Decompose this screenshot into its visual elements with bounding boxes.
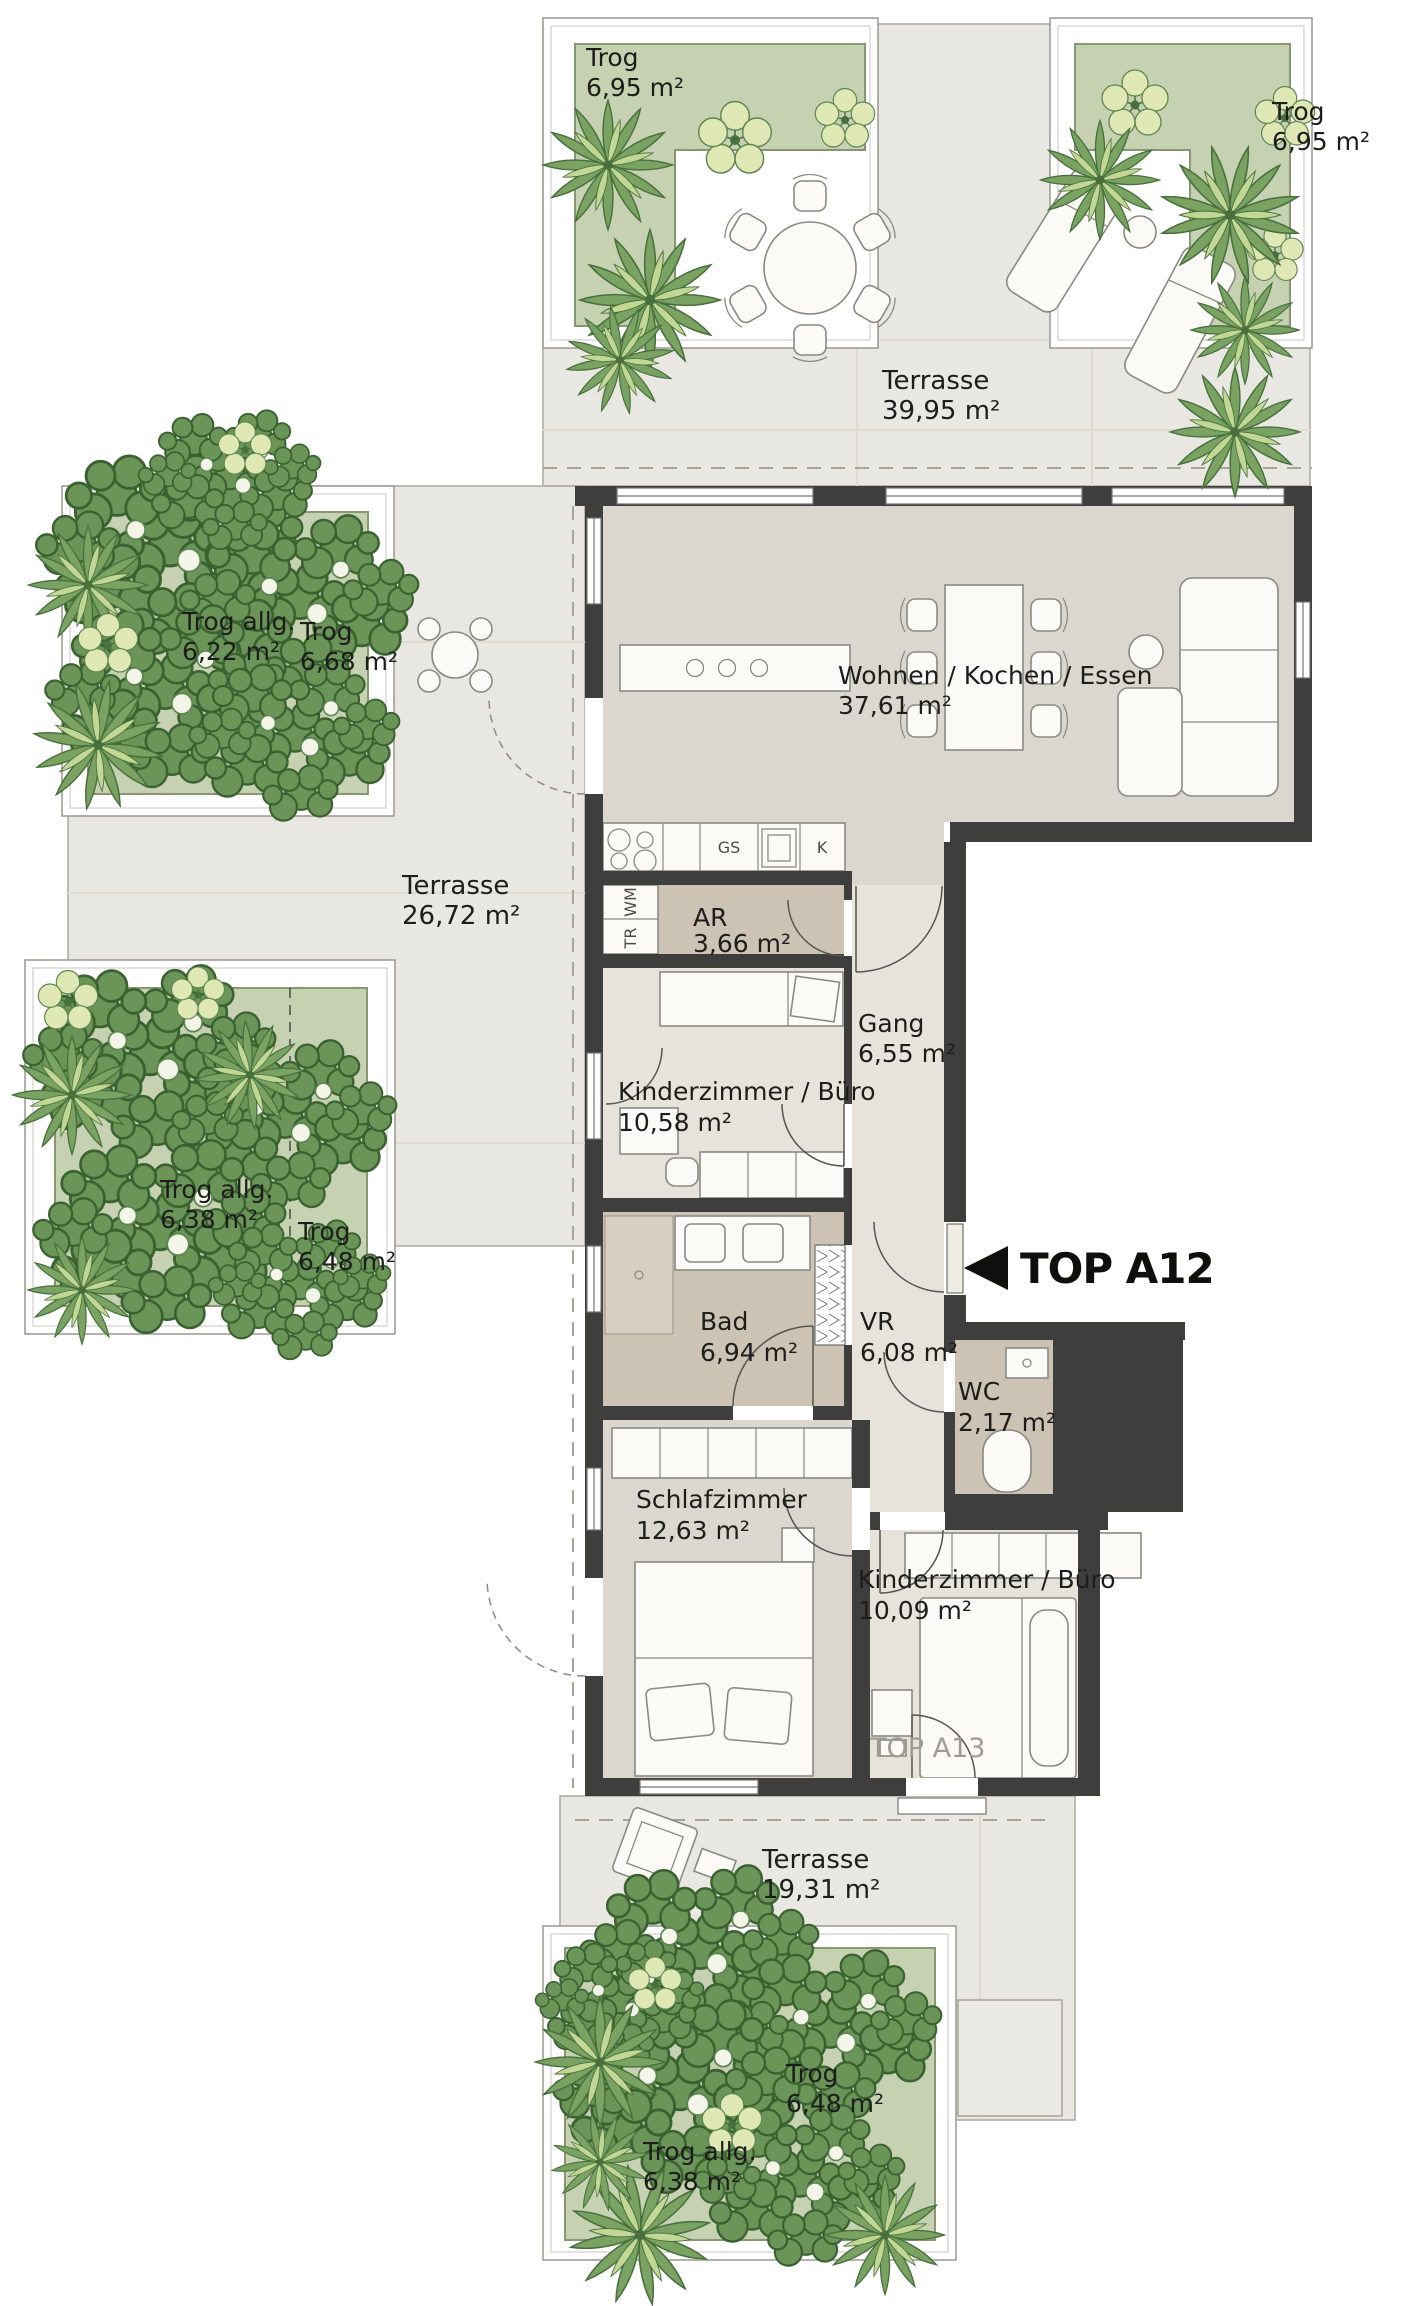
room-child1-area: 10,58 m² — [618, 1108, 732, 1137]
washbasin — [743, 1224, 783, 1262]
wall-segment — [950, 822, 1312, 842]
round-table-small — [432, 632, 478, 678]
wall-segment — [1078, 1512, 1100, 1796]
terrace-left-area: 26,72 m² — [402, 901, 520, 931]
room-vr-name: VR — [860, 1307, 894, 1336]
room-child1-name: Kinderzimmer / Büro — [618, 1077, 875, 1106]
wall-segment — [813, 1406, 852, 1420]
room-ar-name: AR — [693, 903, 727, 932]
room-bedroom-name: Schlafzimmer — [636, 1485, 808, 1514]
trough-left-upper-name: Trog — [299, 617, 353, 646]
trough-bottom-shared-area: 6,38 m² — [643, 2167, 741, 2196]
wall-segment — [870, 1512, 880, 1530]
dryer-label: TR — [621, 928, 640, 950]
terrace-left-name: Terrasse — [401, 871, 509, 901]
fridge-label: K — [817, 838, 828, 857]
terrace-top-area: 39,95 m² — [882, 396, 1000, 426]
wall-segment — [944, 842, 966, 1212]
planter-box-small — [958, 2000, 1062, 2116]
kitchen-counter: GS K — [603, 823, 845, 872]
wall-segment — [585, 1198, 852, 1212]
wall-segment — [944, 1295, 966, 1322]
room-wc-name: WC — [958, 1377, 1000, 1406]
room-bad-name: Bad — [700, 1307, 748, 1336]
trough-top-right-name: Trog — [1271, 97, 1325, 126]
wall-segment-shaft — [1053, 1322, 1183, 1512]
room-vr-area: 6,08 m² — [860, 1338, 958, 1367]
wc-sink — [1006, 1348, 1048, 1378]
trough-top-left-area: 6,95 m² — [586, 73, 684, 102]
wall-segment — [944, 1494, 1085, 1512]
room-ar-area: 3,66 m² — [693, 929, 791, 958]
room-living-area: 37,61 m² — [838, 691, 952, 720]
wall-segment — [844, 1345, 852, 1406]
room-wc-area: 2,17 m² — [958, 1408, 1056, 1437]
wall-segment — [852, 1420, 870, 1488]
terrace-door-opening — [585, 698, 603, 794]
door-swing-dashed — [487, 1578, 585, 1676]
room-gang-area: 6,55 m² — [858, 1039, 956, 1068]
wall-segment — [585, 1406, 733, 1420]
room-bad-area: 6,94 m² — [700, 1338, 798, 1367]
trough-left-lower-shared-area: 6,38 m² — [160, 1205, 258, 1234]
room-gang-name: Gang — [858, 1009, 924, 1038]
unit-arrow-icon — [964, 1246, 1008, 1290]
floor-plan-page: GS K WM TR — [0, 0, 1402, 2306]
trough-left-upper-area: 6,68 m² — [300, 647, 398, 676]
bed-double — [635, 1562, 813, 1776]
side-table — [1124, 216, 1156, 248]
neighbor-unit-label: TOP A13 — [869, 1733, 985, 1764]
terrace-top-name: Terrasse — [881, 366, 989, 396]
trough-left-upper-shared-name: Trog allg. — [181, 607, 295, 636]
wardrobe — [612, 1428, 852, 1478]
pillow — [724, 1687, 792, 1744]
wardrobe — [700, 1152, 844, 1198]
entry-door-leaf — [947, 1224, 963, 1293]
washing-machine-label: WM — [621, 887, 640, 917]
trough-top-left-name: Trog — [585, 43, 639, 72]
trough-left-upper-shared-area: 6,22 m² — [182, 637, 280, 666]
wall-segment — [585, 871, 852, 885]
chaise — [1118, 688, 1182, 796]
trough-left-lower-area: 6,48 m² — [298, 1247, 396, 1276]
shelf — [782, 1528, 814, 1562]
trough-bottom-shared-name: Trog allg. — [642, 2137, 756, 2166]
terrace-door-opening — [585, 1578, 603, 1676]
pillow — [790, 976, 839, 1022]
toilet — [983, 1430, 1031, 1492]
desk-chair — [666, 1158, 698, 1186]
desk — [872, 1690, 912, 1736]
laundry-closet: WM TR — [603, 885, 658, 954]
trough-bottom-name: Trog — [785, 2059, 839, 2088]
trough-left-lower-shared-name: Trog allg. — [159, 1175, 273, 1204]
door-opening — [844, 900, 852, 956]
terrace-bottom-name: Terrasse — [761, 1845, 869, 1875]
trough-top-right-area: 6,95 m² — [1272, 127, 1370, 156]
room-child2-area: 10,09 m² — [858, 1596, 972, 1625]
trough-left-lower-name: Trog — [297, 1217, 351, 1246]
room-living-name: Wohnen / Kochen / Essen — [838, 661, 1152, 690]
wall-segment — [844, 1212, 852, 1245]
room-child2-name: Kinderzimmer / Büro — [858, 1565, 1115, 1594]
terrace-bottom-area: 19,31 m² — [762, 1875, 880, 1905]
washbasin — [685, 1224, 725, 1262]
door-opening — [844, 1104, 852, 1168]
door-sill — [898, 1798, 986, 1814]
built-in-wardrobe — [815, 1245, 845, 1345]
shower-tray — [605, 1216, 673, 1334]
dishwasher-label: GS — [718, 838, 741, 857]
terrace-door-opening — [906, 1778, 978, 1796]
floor-plan: GS K WM TR — [0, 0, 1402, 2306]
round-table — [764, 222, 856, 314]
unit-label: TOP A12 — [1020, 1244, 1214, 1293]
room-bedroom-area: 12,63 m² — [636, 1516, 750, 1545]
kitchen-island — [620, 645, 850, 691]
wall-segment — [944, 1212, 966, 1222]
pillow — [645, 1683, 714, 1741]
pillow — [1030, 1610, 1068, 1766]
trough-bottom-area: 6,48 m² — [786, 2089, 884, 2118]
